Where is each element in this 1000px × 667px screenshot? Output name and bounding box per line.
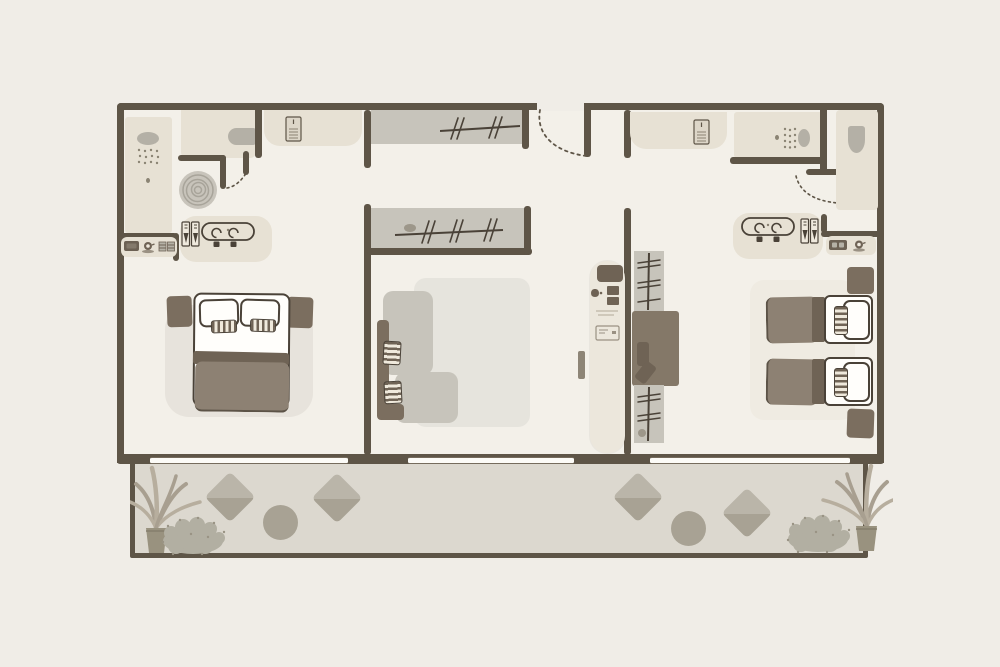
- twin-bed-2-accent-pillow: [834, 368, 848, 397]
- sofa-pillow-bottom: [383, 381, 402, 405]
- nightstand-right-bottom: [847, 409, 875, 439]
- coffee-station-left: [123, 239, 175, 255]
- wall-luggage-rack: [578, 351, 585, 379]
- wc-room-right: [836, 110, 878, 210]
- nightstand-right-top: [847, 267, 874, 294]
- shower-spray-right: [782, 126, 798, 150]
- potted-palm-right: [798, 460, 893, 555]
- shrub-left: [158, 512, 228, 557]
- sliding-door-living-room: [408, 457, 574, 464]
- coffee-station-right: [828, 237, 870, 253]
- entry-door-swing-arc: [532, 105, 592, 161]
- closet-upper-hangers: [634, 251, 664, 312]
- sink-basin-right: [740, 216, 798, 244]
- side-table-right: [671, 511, 706, 546]
- divider-left-upper: [364, 110, 371, 168]
- wc-wall-h-left: [178, 155, 226, 161]
- shower-head-left: [137, 132, 159, 145]
- shower-head-right: [798, 129, 810, 147]
- wardrobe-top-hangers: [440, 116, 520, 140]
- shower-spray-left: [136, 147, 162, 169]
- sofa-chaise: [395, 372, 458, 423]
- minibar-items: [588, 262, 626, 357]
- nightstand-left: [166, 296, 192, 328]
- divider-left-lower: [364, 204, 371, 455]
- wardrobe-mid-hangers: [393, 217, 505, 245]
- toilet-left: [228, 128, 256, 145]
- shower-drain-right: [775, 135, 779, 140]
- shower-wall-h-right: [730, 157, 827, 164]
- wardrobe-mid-lip: [367, 248, 532, 255]
- shower-drain-left: [146, 178, 150, 183]
- bath-wall-v-right: [820, 103, 827, 175]
- king-bed-duvet: [195, 361, 290, 412]
- twin-bed-2-duvet: [766, 359, 819, 406]
- floor-plan-canvas: [0, 0, 1000, 667]
- twin-bed-1-accent-pillow: [834, 306, 848, 335]
- sofa-pillow-top: [382, 341, 401, 366]
- twin-bed-1-duvet: [766, 297, 819, 344]
- nightstand-right: [286, 297, 313, 329]
- accent-pillow-left: [211, 320, 237, 334]
- side-table-left: [263, 505, 298, 540]
- toilet-right: [848, 126, 865, 153]
- sink-basin-left: [200, 221, 258, 249]
- wall-panel-left: [285, 116, 302, 142]
- spiral-rug: [178, 170, 218, 210]
- wardrobe-top-post: [522, 107, 529, 149]
- entry-ledge-right: [630, 112, 727, 149]
- wc-door-arc-right: [792, 172, 842, 208]
- double-sink-icon-left: [181, 221, 200, 248]
- wardrobe-mid-post: [524, 206, 531, 255]
- entry-ledge-left: [264, 110, 362, 146]
- wc-wall-stub-left: [255, 103, 262, 158]
- double-sink-icon-right: [800, 218, 819, 245]
- wall-panel-right: [693, 119, 710, 145]
- sofa-frame-corner: [377, 404, 404, 420]
- accent-pillow-right: [250, 319, 276, 333]
- closet-lower-hangers: [634, 385, 664, 443]
- wc-door-arc-left: [222, 158, 252, 192]
